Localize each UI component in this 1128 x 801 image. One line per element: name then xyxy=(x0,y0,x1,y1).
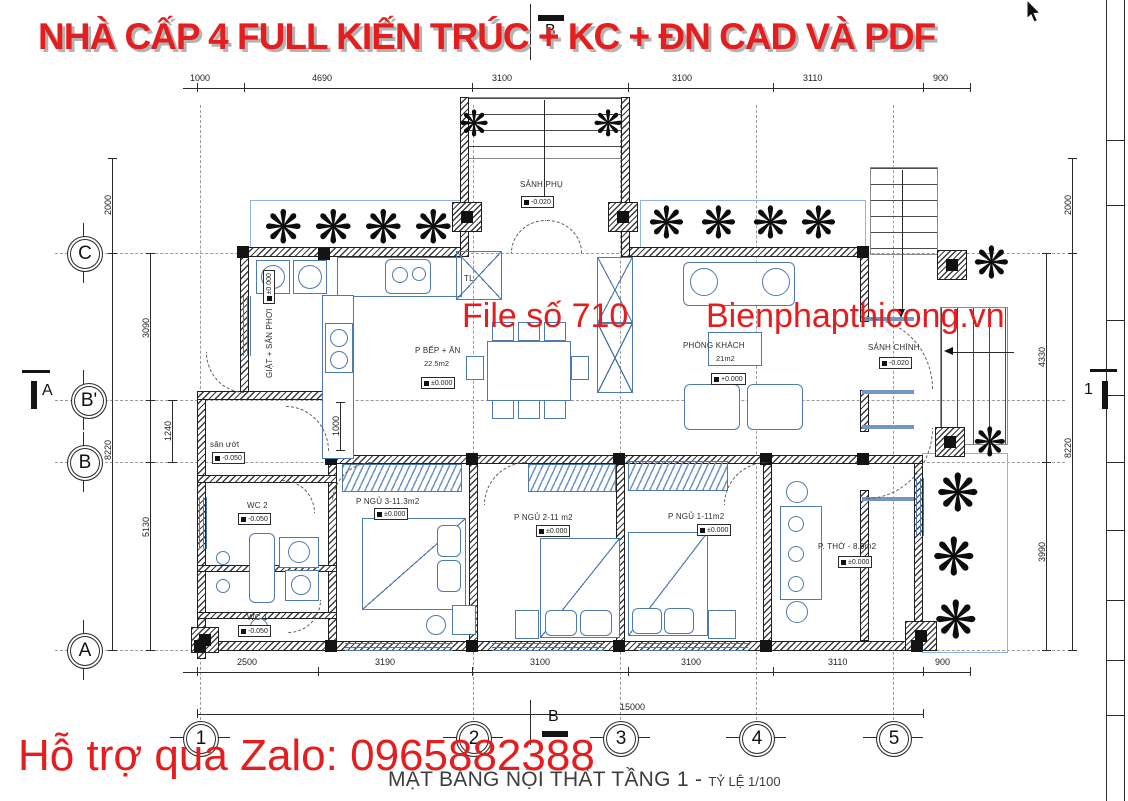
section-label-bottom: B xyxy=(548,708,559,726)
door-swing xyxy=(547,220,582,253)
column xyxy=(466,453,478,465)
dim-label: 900 xyxy=(935,657,950,667)
washing-machine-drum xyxy=(298,265,322,289)
dim-tick xyxy=(1068,650,1077,651)
caption-scale: TỶ LỆ 1/100 xyxy=(708,774,780,789)
dim-label: 1000 xyxy=(190,73,210,83)
plant-icon: ❋ xyxy=(264,204,303,250)
room-label: sân ướt xyxy=(210,440,239,449)
dim-tick xyxy=(168,462,177,463)
chair xyxy=(544,400,566,419)
dimension-line xyxy=(112,158,113,650)
window xyxy=(199,497,207,549)
dim-tick xyxy=(146,462,155,463)
grid-bubble-5: 5 xyxy=(876,721,912,757)
column xyxy=(911,640,923,652)
dim-label: 3090 xyxy=(141,303,151,353)
column xyxy=(938,251,966,279)
column xyxy=(453,203,481,231)
room-area: 22.5m2 xyxy=(424,359,449,368)
dim-tick xyxy=(108,253,117,254)
watermark-support: Hỗ trợ qua Zalo: 0965882388 xyxy=(18,731,595,781)
grid-bubble-Bp: B' xyxy=(71,383,107,419)
window xyxy=(916,478,924,536)
sheet-frame-tick xyxy=(1106,660,1124,661)
column xyxy=(760,640,772,652)
room-label: P NGỦ 1-11m2 xyxy=(668,512,724,521)
door-swing xyxy=(511,220,546,253)
dim-label: 2000 xyxy=(103,180,113,230)
dim-tick xyxy=(244,83,245,92)
window xyxy=(243,296,251,356)
grid-bubble-4: 4 xyxy=(739,721,775,757)
sheet-frame-tick xyxy=(1106,320,1124,321)
column xyxy=(609,203,637,231)
elevation-badge: +0.000 xyxy=(711,373,746,385)
toilet xyxy=(216,579,230,593)
sheet-frame-tick xyxy=(1106,462,1124,463)
elevation-badge: ±0.000 xyxy=(374,508,408,520)
stool xyxy=(426,615,446,635)
column xyxy=(936,428,964,456)
dim-label: 900 xyxy=(933,73,948,83)
elevation-badge: -0.020 xyxy=(879,357,912,369)
sheet-frame-tick xyxy=(1106,715,1124,716)
elevation-badge: -0.050 xyxy=(238,625,271,637)
room-label: P. THỜ - 8.9m2 xyxy=(818,542,876,551)
dim-label: 3990 xyxy=(1037,527,1047,577)
dim-tick xyxy=(628,667,629,676)
dim-label: 3190 xyxy=(375,657,395,667)
nightstand xyxy=(515,610,539,639)
bathtub xyxy=(249,533,275,603)
dimension-line xyxy=(183,672,970,673)
sink-bowl xyxy=(412,267,426,281)
column xyxy=(466,640,478,652)
door-swing xyxy=(288,600,321,633)
dim-tick xyxy=(923,667,924,676)
elevation-badge: -0.050 xyxy=(212,452,245,464)
altar-item xyxy=(788,576,804,592)
dimension-line xyxy=(1046,253,1047,650)
stair-arrow-line xyxy=(902,170,903,310)
dim-label: 1240 xyxy=(163,406,173,456)
wall-segment xyxy=(328,455,923,464)
watermark-file-number: File số 710 xyxy=(462,297,628,336)
dim-tick xyxy=(108,650,117,651)
plant-icon: ❋ xyxy=(936,468,980,520)
dim-label: 8220 xyxy=(1063,423,1073,473)
elevation-badge: ±0.000 xyxy=(536,525,570,537)
dim-label: 2500 xyxy=(237,657,257,667)
door-swing xyxy=(724,462,767,505)
column xyxy=(194,640,206,652)
door-swing xyxy=(206,352,245,393)
dim-tick xyxy=(472,83,473,92)
elevation-badge: -0.020 xyxy=(521,196,554,208)
dim-label: 8220 xyxy=(103,425,113,475)
altar-item xyxy=(788,516,804,532)
sofa-cushion xyxy=(690,268,718,296)
arrow-left-icon xyxy=(944,347,953,355)
window xyxy=(638,643,748,651)
room-label-rotated: GIẶT + SÂN PHƠI ±0.000 xyxy=(262,258,276,378)
dim-label: 1000 xyxy=(331,401,341,451)
section-flag xyxy=(1102,381,1108,409)
sheet-frame-tick xyxy=(1106,600,1124,601)
sink-bowl xyxy=(291,575,311,595)
sheet-frame-tick xyxy=(1106,395,1124,396)
dim-tick xyxy=(1042,253,1051,254)
altar-item xyxy=(788,546,804,562)
terrace-steps xyxy=(870,167,938,255)
sheet-frame-line xyxy=(1124,0,1125,801)
plant-icon: ❋ xyxy=(973,423,1007,463)
section-flag xyxy=(31,381,37,409)
section-label-right: 1 xyxy=(1084,381,1093,399)
room-label: GIẶT + SÂN PHƠI xyxy=(265,308,274,378)
dim-label: 3110 xyxy=(828,657,847,667)
stool xyxy=(786,601,808,623)
dim-tick xyxy=(108,158,117,159)
room-label: WC 1 xyxy=(247,613,268,622)
column xyxy=(857,246,869,258)
room-label: SẢNH PHỤ xyxy=(520,180,563,189)
pillow xyxy=(545,610,577,636)
column xyxy=(613,640,625,652)
grid-bubble-A: A xyxy=(67,633,103,669)
dim-tick xyxy=(628,83,629,92)
room-label: PHÒNG KHÁCH xyxy=(683,341,745,350)
grid-bubble-B: B xyxy=(67,445,103,481)
pillow xyxy=(437,560,461,592)
toilet xyxy=(216,551,230,565)
watermark-website: Bienphapthicong.vn xyxy=(706,297,1005,336)
plant-icon: ❋ xyxy=(648,202,685,246)
dim-tick xyxy=(1068,253,1077,254)
armchair xyxy=(747,384,803,430)
burner xyxy=(330,329,348,347)
wall-segment xyxy=(197,475,337,483)
nightstand xyxy=(708,610,736,639)
chair xyxy=(571,356,589,380)
dim-tick xyxy=(970,667,971,676)
dim-label: 3100 xyxy=(681,657,701,667)
elevation-badge: ±0.000 xyxy=(263,270,275,304)
fridge xyxy=(456,251,502,300)
stool xyxy=(786,481,808,503)
room-label: P NGỦ 2-11 m2 xyxy=(514,513,573,522)
room-label: P BẾP + ĂN xyxy=(415,346,461,355)
room-label: TL xyxy=(464,274,474,283)
dim-tick xyxy=(197,709,198,718)
section-flag xyxy=(22,370,50,373)
sofa-cushion xyxy=(762,268,790,296)
dim-tick xyxy=(197,667,198,676)
chair xyxy=(466,356,484,380)
wall-segment xyxy=(197,391,337,400)
door-leaf xyxy=(862,390,914,394)
sheet-frame-tick xyxy=(1106,205,1124,206)
dimension-line xyxy=(1072,158,1073,650)
room-label: P NGỦ 3-11.3m2 xyxy=(356,497,419,506)
sink-bowl xyxy=(392,267,408,283)
column xyxy=(325,640,337,652)
armchair xyxy=(684,384,740,430)
dim-tick xyxy=(472,667,473,676)
watermark-title: NHÀ CẤP 4 FULL KIẾN TRÚC + KC + ĐN CAD V… xyxy=(38,16,935,58)
plant-icon: ❋ xyxy=(700,202,737,246)
pillow xyxy=(632,608,662,634)
dim-tick xyxy=(773,667,774,676)
dimension-line xyxy=(197,714,923,715)
dim-label: 4330 xyxy=(1037,332,1047,382)
door-swing xyxy=(484,462,527,505)
dim-tick xyxy=(1042,462,1051,463)
pillow xyxy=(580,610,612,636)
window xyxy=(492,643,604,651)
dim-tick xyxy=(923,709,924,718)
elevation-badge: ±0.000 xyxy=(697,524,731,536)
elevation-badge: ±0.000 xyxy=(838,556,872,568)
plant-icon: ❋ xyxy=(314,204,353,250)
plant-icon: ❋ xyxy=(934,595,978,647)
plant-icon: ❋ xyxy=(932,532,976,584)
sheet-frame-tick xyxy=(1106,140,1124,141)
dim-label: 4690 xyxy=(312,73,332,83)
section-label-left: A xyxy=(42,382,53,400)
plant-icon: ❋ xyxy=(414,204,453,250)
dim-tick xyxy=(197,83,198,92)
entry-arrow-line xyxy=(952,352,1014,353)
grid-bubble-C: C xyxy=(67,236,103,272)
sink-bowl xyxy=(288,541,310,563)
plant-icon: ❋ xyxy=(459,106,489,142)
grid-bubble-3: 3 xyxy=(603,721,639,757)
dim-label: 2000 xyxy=(1063,180,1073,230)
plant-icon: ❋ xyxy=(973,242,1010,286)
window xyxy=(345,643,453,651)
dim-tick xyxy=(146,650,155,651)
burner xyxy=(330,351,348,369)
dim-label: 3100 xyxy=(672,73,692,83)
dim-tick xyxy=(1068,158,1077,159)
mouse-cursor-icon xyxy=(1026,0,1046,24)
column xyxy=(237,246,249,258)
room-label: WC 2 xyxy=(247,501,268,510)
nightstand xyxy=(452,605,476,635)
wardrobe xyxy=(528,464,616,492)
dim-tick xyxy=(146,400,155,401)
dimension-line xyxy=(183,88,970,89)
dim-label: 15000 xyxy=(620,702,645,712)
dim-tick xyxy=(1042,650,1051,651)
elevation-badge: ±0.000 xyxy=(421,377,455,389)
dim-tick xyxy=(146,253,155,254)
plant-icon: ❋ xyxy=(364,204,403,250)
sheet-frame-tick xyxy=(1106,530,1124,531)
dim-label: 5130 xyxy=(141,502,151,552)
door-swing xyxy=(282,480,315,513)
elevation-badge: -0.050 xyxy=(238,513,271,525)
dim-tick xyxy=(318,667,319,676)
dim-tick xyxy=(970,83,971,92)
plant-icon: ❋ xyxy=(593,106,623,142)
dim-label: 3100 xyxy=(530,657,550,667)
room-label: SẢNH CHÍNH xyxy=(868,343,920,352)
dim-tick xyxy=(923,83,924,92)
section-flag xyxy=(1090,369,1117,372)
chair xyxy=(492,400,514,419)
dining-table xyxy=(487,341,571,401)
chair xyxy=(518,400,540,419)
plant-icon: ❋ xyxy=(752,202,789,246)
dim-tick xyxy=(773,83,774,92)
room-area: 21m2 xyxy=(716,354,735,363)
wall-segment xyxy=(626,247,869,257)
wardrobe xyxy=(628,461,728,491)
dim-label: 3100 xyxy=(492,73,512,83)
pillow xyxy=(437,525,461,557)
plant-icon: ❋ xyxy=(800,202,837,246)
floor-plan-canvas: ❋ ❋ ❋ ❋ ❋ ❋ ❋ ❋ ❋ ❋ ❋ ❋ ❋ ❋ ❋ xyxy=(0,0,1128,801)
pillow xyxy=(664,608,694,634)
dim-tick xyxy=(168,400,177,401)
dim-label: 3110 xyxy=(803,73,822,83)
